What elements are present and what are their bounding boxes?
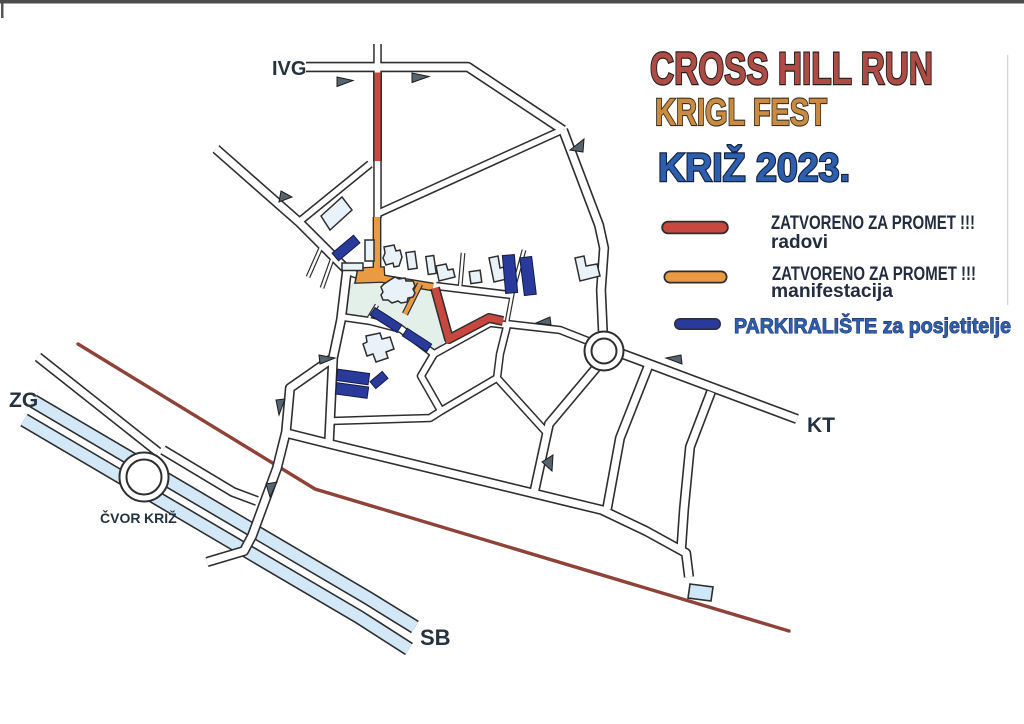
svg-text:KT: KT <box>807 414 835 437</box>
svg-text:ČVOR KRIŽ: ČVOR KRIŽ <box>100 509 177 526</box>
svg-text:ZG: ZG <box>9 389 38 412</box>
svg-text:SB: SB <box>420 625 451 650</box>
svg-text:radovi: radovi <box>771 232 828 253</box>
svg-text:manifestacija: manifestacija <box>771 281 893 302</box>
svg-text:CROSS HILL RUN: CROSS HILL RUN <box>650 43 933 94</box>
svg-text:ZATVORENO ZA PROMET !!!: ZATVORENO ZA PROMET !!! <box>771 213 975 234</box>
svg-text:KRIŽ 2023.: KRIŽ 2023. <box>658 144 850 190</box>
svg-text:IVG: IVG <box>272 58 306 80</box>
svg-text:KRIGL FEST: KRIGL FEST <box>655 92 827 134</box>
svg-text:PARKIRALIŠTE za posjetitelje: PARKIRALIŠTE za posjetitelje <box>734 314 1011 338</box>
